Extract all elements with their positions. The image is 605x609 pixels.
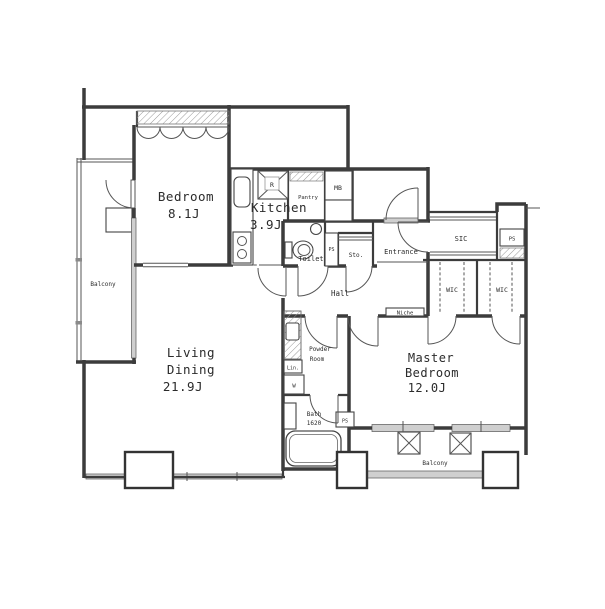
powder-room: Lin. W [284,311,304,394]
linen-closet: Lin. [284,360,302,373]
sink-icon [234,177,250,207]
door-arc-storage [346,266,372,292]
master-label-1: Master [408,351,454,365]
kitchen-label: Kitchen [251,200,307,215]
bedroom-label: Bedroom [158,189,214,204]
linen-label: Lin. [287,366,299,372]
refrigerator-space: R [258,171,288,199]
toilet-label: Toilet [298,255,323,263]
pipe-space-label: PS [328,247,334,253]
sill-tick [76,258,83,262]
storage-label: Sto. [349,252,363,259]
pipe-space-toilet: PS [325,233,338,266]
shoe-in-closet: SIC [430,217,496,255]
pantry: Pantry [290,172,323,201]
bathtub-icon [286,431,341,466]
bath-label: Bath [307,411,322,418]
sill-tick [76,321,83,325]
door-arc-toilet [298,266,328,296]
bath-counter [284,403,296,429]
hatch-square-icon [398,432,420,454]
bottom-balcony [367,432,483,478]
powder-label-1: Powder [309,346,331,353]
walk-in-closet-right: WIC [490,262,512,314]
door-arc-powder [305,316,337,348]
pipe-space-top-right: PS [500,229,524,258]
meter-box: MB [325,171,352,221]
hand-basin-icon [311,224,322,235]
door-leaf [131,180,135,208]
floor-plan-drawing: R Pantry MB Toilet PS Sto. SIC [0,0,605,609]
pipe-space-label: PS [342,419,348,425]
column [337,452,367,488]
wash-basin-icon [286,323,299,340]
storage-closet: Sto. [338,237,373,259]
niche-label: Niche [397,311,414,317]
balcony-unit-box [106,208,132,232]
door-arc-master [348,316,378,346]
living-label-1: Living [167,345,215,360]
balcony-rail [367,471,483,478]
pipe-space-label: PS [509,237,516,243]
niche: Niche [386,308,424,317]
living-west-window [132,218,137,358]
wic-label: WIC [446,286,458,294]
master-size: 12.0J [408,381,447,395]
folding-door-icon [137,127,229,139]
column [125,452,173,488]
hall-label: Hall [331,289,349,298]
bedroom-closet [137,111,229,139]
door-arc-balcony [106,180,134,208]
bath-size: 1620 [307,420,322,427]
hatch-square-icon [450,433,471,454]
living-label-2: Dining [167,362,215,377]
refrigerator-label: R [270,181,274,189]
duct-hatch [500,248,524,258]
door-arc-wic-left [428,316,456,344]
floor-plan-canvas: R Pantry MB Toilet PS Sto. SIC [0,0,605,609]
door-arc-living [258,268,286,296]
walk-in-closet-left: WIC [440,262,464,314]
washer-space: W [284,375,304,394]
kitchen-size: 3.9J [250,217,282,232]
toilet-room: Toilet [285,224,324,264]
meter-box-label: MB [334,184,342,192]
balcony-label-left: Balcony [90,281,116,288]
wic-label: WIC [496,286,508,294]
sic-label: SIC [455,235,468,243]
balcony-label-bottom: Balcony [422,460,448,467]
column [483,452,518,488]
door-arc-entry [386,188,418,220]
door-arc-wic-right [492,316,520,344]
powder-label-2: Room [310,356,325,363]
left-balcony [76,158,135,362]
living-size: 21.9J [163,379,203,394]
master-label-2: Bedroom [405,366,459,380]
door-arc-bath [310,395,338,423]
bedroom-size: 8.1J [168,206,200,221]
pipe-space-bath: PS [336,412,354,427]
entrance-label: Entrance [384,248,418,256]
